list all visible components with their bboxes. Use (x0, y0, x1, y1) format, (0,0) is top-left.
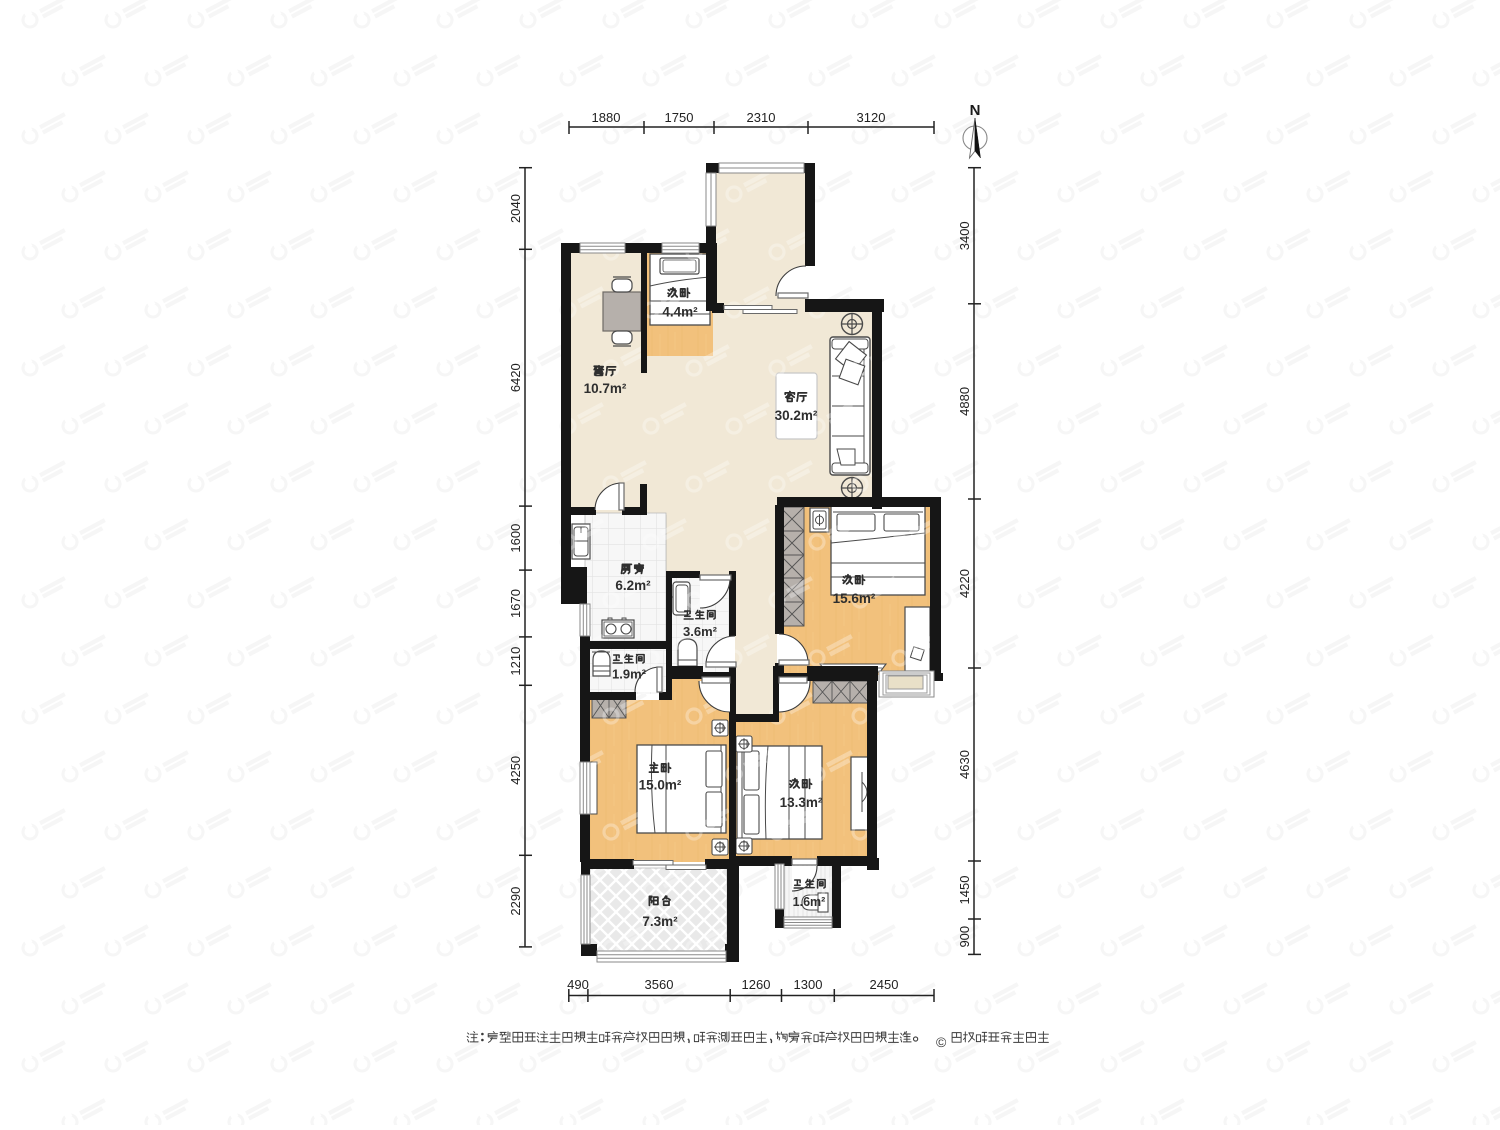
svg-text:1670: 1670 (508, 589, 523, 618)
svg-text:2310: 2310 (747, 110, 776, 125)
svg-text:3560: 3560 (645, 977, 674, 992)
svg-text:4250: 4250 (508, 756, 523, 785)
svg-text:1.6m²: 1.6m² (793, 895, 826, 909)
svg-text:4.4m²: 4.4m² (662, 305, 698, 320)
svg-text:1210: 1210 (508, 647, 523, 676)
svg-text:1450: 1450 (957, 876, 972, 905)
svg-text:2290: 2290 (508, 887, 523, 916)
svg-text:3120: 3120 (857, 110, 886, 125)
svg-text:4880: 4880 (957, 387, 972, 416)
svg-text:15.0m²: 15.0m² (639, 778, 682, 793)
svg-text:490: 490 (567, 977, 589, 992)
svg-text:900: 900 (957, 926, 972, 948)
svg-text:10.7m²: 10.7m² (584, 381, 627, 396)
svg-text:6420: 6420 (508, 363, 523, 392)
svg-text:4630: 4630 (957, 750, 972, 779)
svg-text:2040: 2040 (508, 194, 523, 223)
svg-text:1880: 1880 (592, 110, 621, 125)
svg-text:1300: 1300 (794, 977, 823, 992)
svg-text:3400: 3400 (957, 221, 972, 250)
svg-text:1600: 1600 (508, 524, 523, 553)
svg-text:1.9m²: 1.9m² (612, 667, 647, 682)
svg-text:1260: 1260 (742, 977, 771, 992)
svg-text:3.6m²: 3.6m² (683, 624, 718, 639)
svg-text:15.6m²: 15.6m² (833, 591, 876, 606)
svg-text:N: N (970, 102, 981, 119)
svg-text:7.3m²: 7.3m² (642, 914, 678, 929)
svg-text:2450: 2450 (870, 977, 899, 992)
svg-text:13.3m²: 13.3m² (780, 795, 823, 810)
svg-text:4220: 4220 (957, 569, 972, 598)
svg-text:©: © (936, 1034, 947, 1050)
svg-text:30.2m²: 30.2m² (775, 408, 818, 423)
svg-text:1750: 1750 (665, 110, 694, 125)
svg-text:6.2m²: 6.2m² (615, 578, 651, 593)
